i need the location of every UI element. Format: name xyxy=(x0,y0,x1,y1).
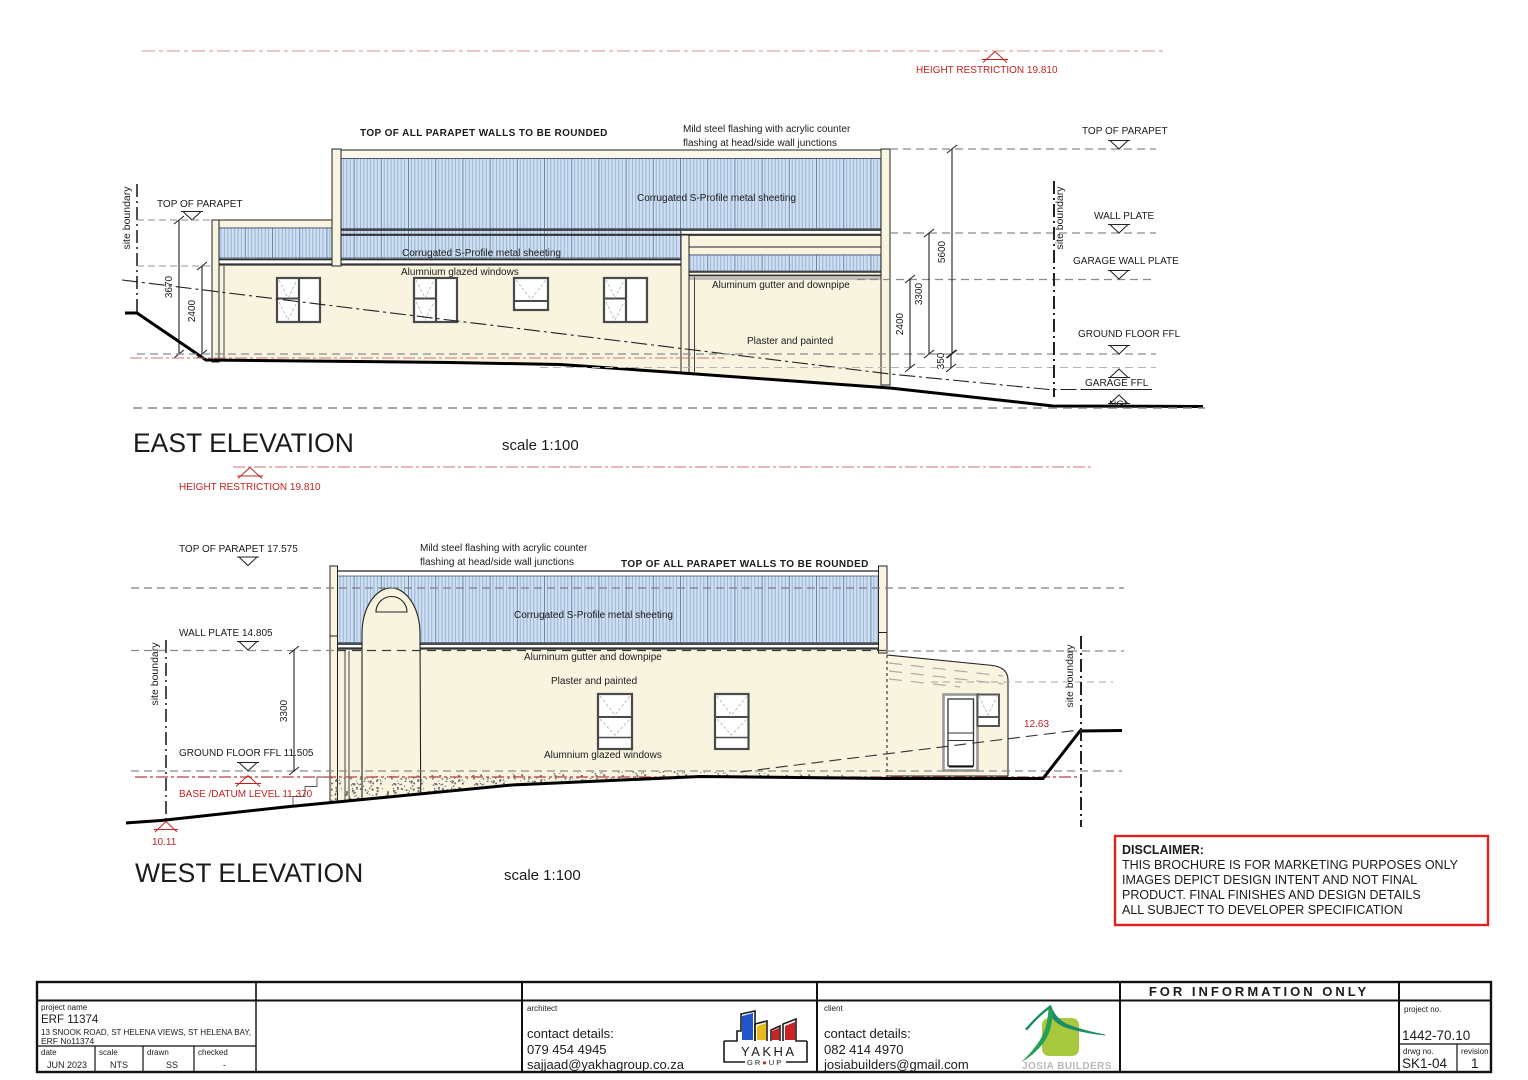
svg-text:Corrugated S-Profile metal she: Corrugated S-Profile metal sheeting xyxy=(637,193,796,204)
svg-text:2400: 2400 xyxy=(895,312,906,335)
svg-text:Alumnium glazed windows: Alumnium glazed windows xyxy=(544,750,662,761)
svg-text:SK1-04: SK1-04 xyxy=(1402,1056,1448,1071)
svg-text:site boundary: site boundary xyxy=(1054,186,1066,250)
svg-text:GROUND FLOOR FFL 11.505: GROUND FLOOR FFL 11.505 xyxy=(179,748,314,759)
svg-text:Plaster and painted: Plaster and painted xyxy=(747,336,833,347)
svg-text:flashing at head/side wall jun: flashing at head/side wall junctions xyxy=(683,138,837,149)
svg-text:site boundary: site boundary xyxy=(149,642,161,706)
svg-text:079 454 4945: 079 454 4945 xyxy=(527,1042,607,1057)
svg-text:GROUND FLOOR FFL: GROUND FLOOR FFL xyxy=(1078,329,1181,340)
svg-text:GARAGE FFL: GARAGE FFL xyxy=(1085,378,1149,389)
svg-text:082 414 4970: 082 414 4970 xyxy=(824,1042,904,1057)
svg-text:NTS: NTS xyxy=(110,1060,128,1070)
svg-text:GR●UP: GR●UP xyxy=(747,1058,783,1067)
svg-text:TOP OF ALL PARAPET WALLS TO BE: TOP OF ALL PARAPET WALLS TO BE ROUNDED xyxy=(360,128,608,139)
svg-text:flashing at head/side wall jun: flashing at head/side wall junctions xyxy=(420,557,574,568)
svg-text:scale 1:100: scale 1:100 xyxy=(502,437,579,454)
svg-text:scale 1:100: scale 1:100 xyxy=(504,867,581,884)
svg-text:Mild steel flashing with acryl: Mild steel flashing with acrylic counter xyxy=(683,124,851,135)
svg-text:site boundary: site boundary xyxy=(1064,644,1076,708)
svg-text:12.63: 12.63 xyxy=(1024,719,1049,730)
svg-text:ALL SUBJECT TO DEVELOPER SPECI: ALL SUBJECT TO DEVELOPER SPECIFICATION xyxy=(1122,903,1403,917)
svg-text:IMAGES DEPICT DESIGN INTENT AN: IMAGES DEPICT DESIGN INTENT AND NOT FINA… xyxy=(1122,873,1417,887)
svg-text:drawn: drawn xyxy=(147,1048,169,1057)
svg-text:PRODUCT. FINAL FINISHES AND DE: PRODUCT. FINAL FINISHES AND DESIGN DETAI… xyxy=(1122,888,1421,902)
svg-text:TOP OF PARAPET: TOP OF PARAPET xyxy=(1082,126,1168,137)
svg-text:Mild steel flashing with acryl: Mild steel flashing with acrylic counter xyxy=(420,543,588,554)
svg-text:5600: 5600 xyxy=(937,240,948,263)
svg-text:HEIGHT RESTRICTION 19.810: HEIGHT RESTRICTION 19.810 xyxy=(916,65,1058,76)
svg-text:2400: 2400 xyxy=(187,299,198,322)
svg-text:TOP OF ALL PARAPET WALLS TO BE: TOP OF ALL PARAPET WALLS TO BE ROUNDED xyxy=(621,559,869,570)
svg-text:FOR INFORMATION ONLY: FOR INFORMATION ONLY xyxy=(1149,984,1369,999)
svg-text:3300: 3300 xyxy=(914,282,925,305)
svg-text:10.11: 10.11 xyxy=(152,837,177,848)
svg-text:THIS BROCHURE IS FOR MARKETING: THIS BROCHURE IS FOR MARKETING PURPOSES … xyxy=(1122,858,1459,872)
svg-text:3670: 3670 xyxy=(164,275,175,298)
svg-text:revision: revision xyxy=(1461,1047,1489,1056)
svg-text:Aluminum gutter and downpipe: Aluminum gutter and downpipe xyxy=(712,280,850,291)
svg-text:1: 1 xyxy=(1471,1056,1479,1071)
svg-text:contact details:: contact details: xyxy=(824,1026,911,1041)
svg-text:TOP OF PARAPET 17.575: TOP OF PARAPET 17.575 xyxy=(179,544,298,555)
svg-text:WEST ELEVATION: WEST ELEVATION xyxy=(135,858,363,888)
svg-text:project name: project name xyxy=(41,1003,88,1012)
svg-text:TOP OF PARAPET: TOP OF PARAPET xyxy=(157,199,243,210)
svg-text:JUN 2023: JUN 2023 xyxy=(47,1060,87,1070)
svg-text:NGL: NGL xyxy=(1109,400,1130,411)
svg-text:Corrugated S-Profile metal she: Corrugated S-Profile metal sheeting xyxy=(514,610,673,621)
svg-text:client: client xyxy=(824,1004,843,1013)
svg-text:SS: SS xyxy=(166,1060,178,1070)
svg-text:BASE /DATUM LEVEL 11.370: BASE /DATUM LEVEL 11.370 xyxy=(179,789,313,800)
svg-text:Alumnium glazed windows: Alumnium glazed windows xyxy=(401,267,519,278)
svg-text:3300: 3300 xyxy=(279,699,290,722)
svg-text:scale: scale xyxy=(99,1048,118,1057)
svg-text:josiabuilders@gmail.com: josiabuilders@gmail.com xyxy=(823,1057,969,1072)
svg-text:Aluminum gutter and downpipe: Aluminum gutter and downpipe xyxy=(524,652,662,663)
svg-text:350: 350 xyxy=(936,352,947,369)
svg-text:checked: checked xyxy=(198,1048,228,1057)
svg-text:Plaster and painted: Plaster and painted xyxy=(551,676,637,687)
svg-text:JOSIA BUILDERS: JOSIA BUILDERS xyxy=(1022,1060,1112,1072)
svg-text:WALL PLATE 14.805: WALL PLATE 14.805 xyxy=(179,628,273,639)
svg-text:site boundary: site boundary xyxy=(121,186,133,250)
svg-text:HEIGHT RESTRICTION 19.810: HEIGHT RESTRICTION 19.810 xyxy=(179,482,321,493)
svg-text:-: - xyxy=(223,1060,226,1070)
svg-text:DISCLAIMER:: DISCLAIMER: xyxy=(1122,843,1204,857)
svg-text:date: date xyxy=(41,1048,57,1057)
svg-text:YAKHA: YAKHA xyxy=(741,1044,797,1059)
svg-text:project no.: project no. xyxy=(1404,1005,1441,1014)
svg-text:architect: architect xyxy=(527,1004,558,1013)
svg-text:1442-70.10: 1442-70.10 xyxy=(1402,1028,1470,1043)
svg-text:ERF 11374: ERF 11374 xyxy=(41,1014,99,1026)
svg-text:GARAGE WALL PLATE: GARAGE WALL PLATE xyxy=(1073,256,1179,267)
svg-text:EAST ELEVATION: EAST ELEVATION xyxy=(133,428,354,458)
svg-text:drwg no.: drwg no. xyxy=(1403,1047,1434,1056)
svg-text:sajjaad@yakhagroup.co.za: sajjaad@yakhagroup.co.za xyxy=(527,1057,685,1072)
svg-text:WALL PLATE: WALL PLATE xyxy=(1094,211,1155,222)
svg-text:contact details:: contact details: xyxy=(527,1026,614,1041)
svg-text:ERF No11374: ERF No11374 xyxy=(41,1036,95,1046)
svg-text:Corrugated S-Profile metal she: Corrugated S-Profile metal sheeting xyxy=(402,248,561,259)
